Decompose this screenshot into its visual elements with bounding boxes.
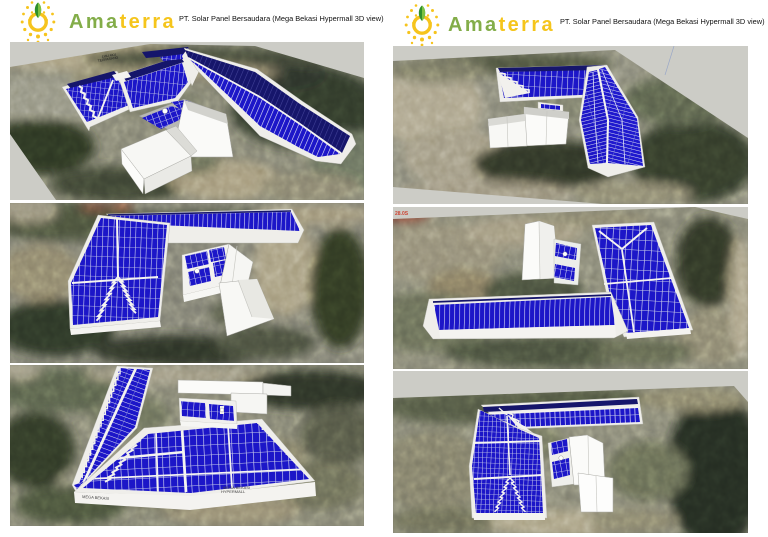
svg-text:HYPERMALL: HYPERMALL: [221, 489, 246, 494]
svg-text:28.0S: 28.0S: [395, 211, 409, 217]
